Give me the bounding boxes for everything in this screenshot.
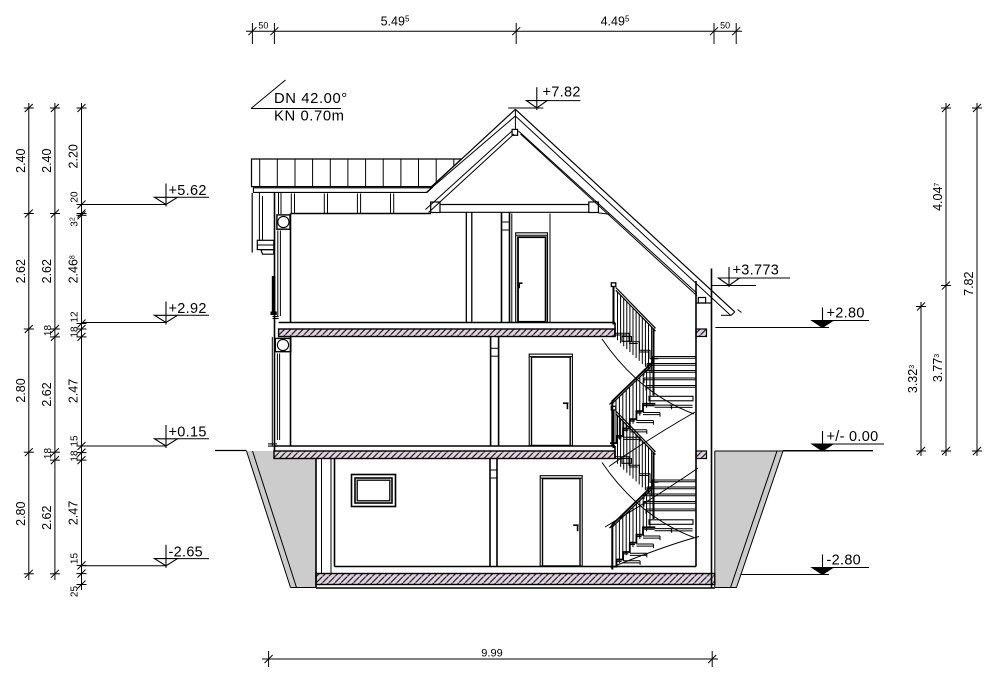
svg-text:15: 15 — [70, 435, 81, 447]
svg-text:2.47: 2.47 — [67, 379, 81, 403]
svg-text:KN 0.70m: KN 0.70m — [274, 109, 345, 125]
svg-text:2.40: 2.40 — [14, 148, 28, 172]
svg-text:50: 50 — [720, 21, 730, 31]
svg-text:2.80: 2.80 — [14, 378, 28, 402]
svg-text:4.047: 4.047 — [931, 183, 945, 211]
svg-text:2.62: 2.62 — [14, 259, 28, 283]
svg-text:2.62: 2.62 — [40, 259, 54, 283]
svg-text:15: 15 — [70, 553, 81, 565]
svg-text:DN 42.00°: DN 42.00° — [274, 91, 348, 107]
svg-text:2.20: 2.20 — [67, 144, 81, 168]
svg-text:9.99: 9.99 — [481, 648, 502, 660]
svg-text:2.40: 2.40 — [40, 148, 54, 172]
svg-text:25: 25 — [70, 586, 81, 598]
svg-text:7.82: 7.82 — [962, 271, 976, 295]
svg-text:2.62: 2.62 — [40, 382, 54, 406]
svg-text:2.80: 2.80 — [14, 501, 28, 525]
svg-text:2.47: 2.47 — [67, 501, 81, 525]
svg-text:3.773: 3.773 — [931, 354, 945, 382]
svg-text:+0.15: +0.15 — [169, 425, 207, 441]
svg-text:50: 50 — [258, 21, 268, 31]
svg-text:+5.62: +5.62 — [169, 183, 207, 199]
svg-text:18: 18 — [43, 325, 54, 337]
svg-text:2.468: 2.468 — [67, 255, 81, 283]
svg-text:+/- 0.00: +/- 0.00 — [827, 429, 879, 445]
svg-text:-2.65: -2.65 — [169, 544, 204, 560]
svg-text:12: 12 — [70, 311, 81, 323]
svg-text:20: 20 — [70, 191, 81, 203]
svg-text:3.323: 3.323 — [906, 365, 920, 393]
svg-text:18: 18 — [70, 450, 81, 462]
svg-text:18: 18 — [70, 326, 81, 338]
svg-text:2.62: 2.62 — [40, 505, 54, 529]
svg-text:+3.773: +3.773 — [733, 263, 780, 279]
svg-text:-2.80: -2.80 — [827, 553, 862, 569]
svg-text:18: 18 — [43, 448, 54, 460]
svg-text:+2.80: +2.80 — [827, 306, 865, 322]
svg-text:+7.82: +7.82 — [543, 85, 581, 101]
svg-text:+2.92: +2.92 — [169, 301, 207, 317]
